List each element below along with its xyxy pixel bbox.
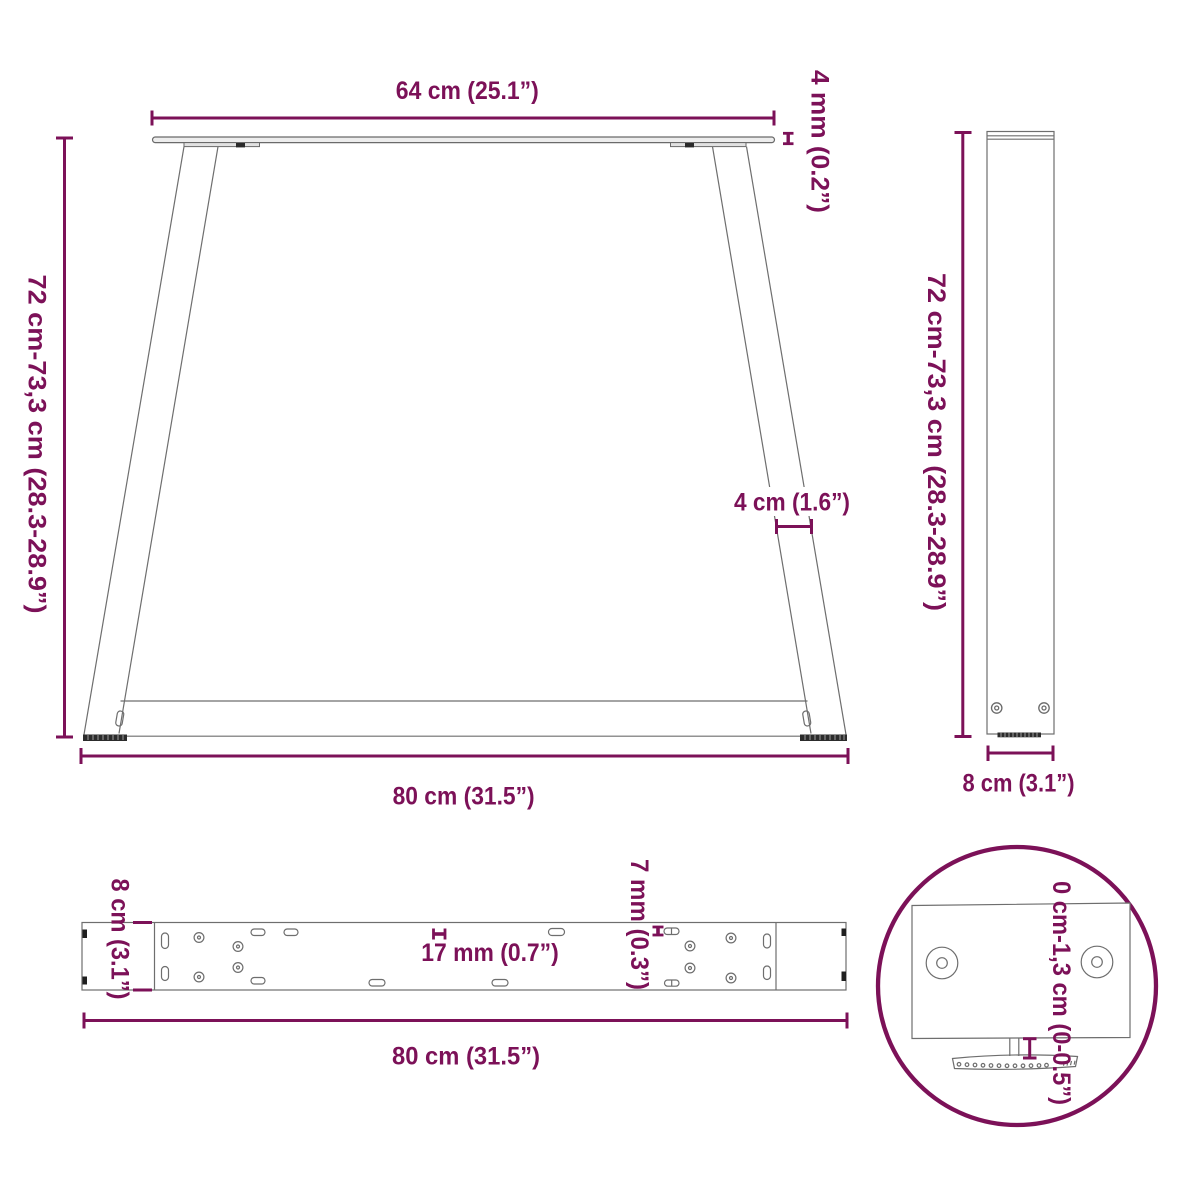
svg-text:72 cm-73,3 cm (28.3-28.9”): 72 cm-73,3 cm (28.3-28.9”) <box>922 273 950 611</box>
svg-text:80 cm (31.5”): 80 cm (31.5”) <box>392 1043 540 1071</box>
svg-text:80 cm (31.5”): 80 cm (31.5”) <box>393 782 535 810</box>
svg-text:4 mm (0.2”): 4 mm (0.2”) <box>806 70 834 213</box>
svg-text:72 cm-73,3 cm (28.3-28.9”): 72 cm-73,3 cm (28.3-28.9”) <box>23 275 51 614</box>
svg-text:64 cm (25.1”): 64 cm (25.1”) <box>396 77 539 105</box>
svg-text:4 cm (1.6”): 4 cm (1.6”) <box>734 489 850 517</box>
svg-text:0 cm-1,3 cm (0-0.5”): 0 cm-1,3 cm (0-0.5”) <box>1047 881 1075 1105</box>
svg-text:7 mm (0.3”): 7 mm (0.3”) <box>625 859 653 990</box>
svg-text:8 cm (3.1”): 8 cm (3.1”) <box>963 770 1075 798</box>
svg-text:17 mm (0.7”): 17 mm (0.7”) <box>421 939 559 967</box>
svg-text:8 cm (3.1”): 8 cm (3.1”) <box>105 879 133 1000</box>
